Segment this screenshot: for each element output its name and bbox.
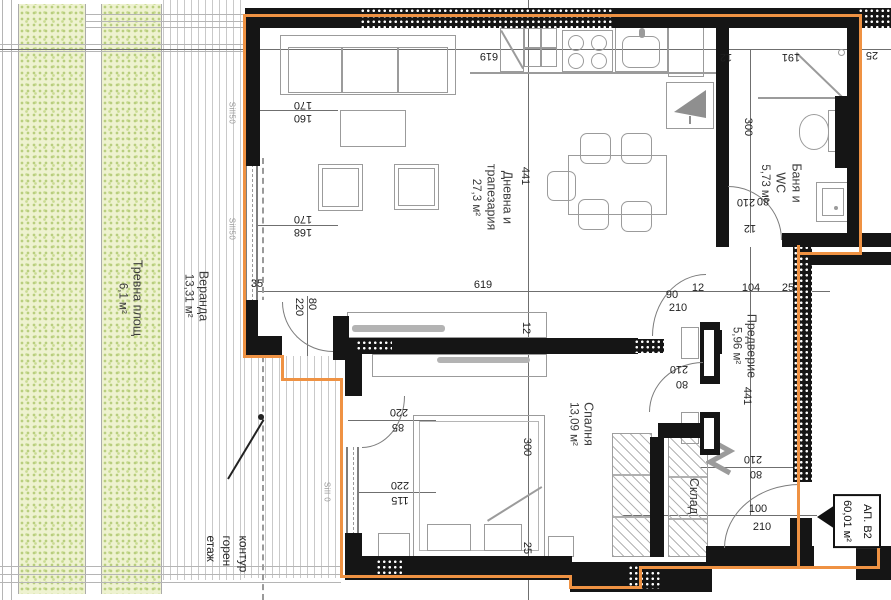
dimension-label: 441 — [519, 167, 531, 185]
dimension-label: 210 — [670, 363, 688, 375]
dimension-label: 220 — [390, 406, 408, 418]
dimension-label: 191 — [782, 51, 800, 63]
dimension-label: 220 — [391, 479, 409, 491]
dimension-label: 160 — [294, 112, 312, 124]
dimension-label: 12 — [744, 222, 756, 234]
dimension-label: 168 — [294, 226, 312, 238]
dimension-label: 12 — [720, 51, 732, 63]
dimension-label: 210 — [744, 453, 762, 465]
dimension-label: 25 — [782, 282, 794, 294]
dimension-label: 115 — [391, 494, 409, 506]
dimension-label: 12 — [520, 322, 532, 334]
dimension-label: 300 — [742, 118, 754, 136]
dimension-label: 170 — [294, 213, 312, 225]
sill-label: Sill 0 — [323, 482, 332, 502]
dimension-label: 619 — [480, 50, 498, 62]
dimension-label: 35 — [251, 278, 263, 290]
dimension-label: 80 — [676, 378, 688, 390]
dimension-label: 619 — [474, 279, 492, 291]
dimension-label: 170 — [294, 99, 312, 111]
annotation-layer: 6191701601701681219125210802108012220852… — [0, 0, 891, 600]
dimension-label: 441 — [741, 387, 753, 405]
dimension-label: 104 — [742, 282, 760, 294]
dimension-label: 300 — [521, 438, 533, 456]
sill-label: Sill50 — [228, 218, 237, 241]
dimension-label: 85 — [392, 421, 404, 433]
dimension-label: 80 — [757, 195, 769, 207]
dimension-label: 25 — [521, 542, 533, 554]
dimension-label: 12 — [692, 282, 704, 294]
dimension-label: 100 — [749, 503, 767, 515]
dimension-label: 210 — [669, 302, 687, 314]
dimension-label: 90 — [666, 289, 678, 301]
floor-plan: АП. В2 60,01 м² Дневна и трапезария 27,3… — [0, 0, 891, 600]
dimension-label: 210 — [737, 196, 755, 208]
sill-label: Sill50 — [228, 102, 237, 125]
dimension-label: 25 — [866, 49, 878, 61]
dimension-label: 80 — [306, 298, 318, 310]
dimension-label: 210 — [753, 521, 771, 533]
dimension-label: 80 — [750, 468, 762, 480]
dimension-label: 220 — [293, 298, 305, 316]
